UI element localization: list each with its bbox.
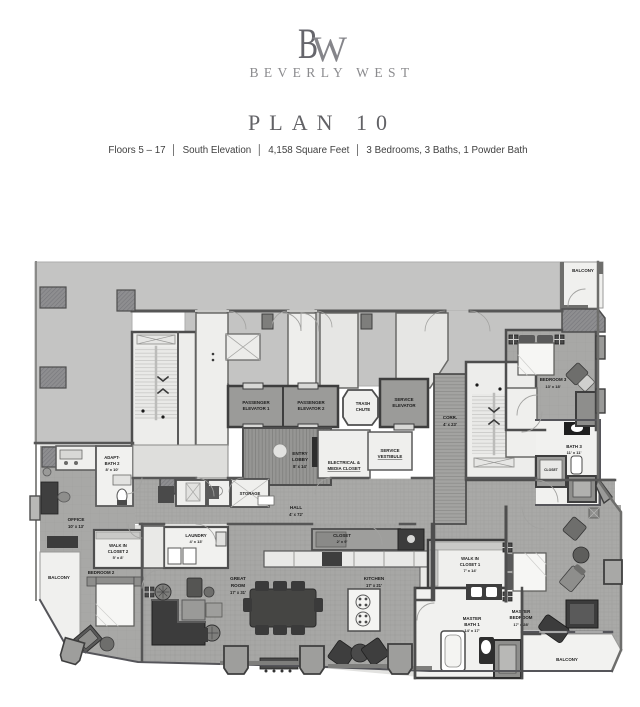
svg-text:BALCONY: BALCONY <box>572 268 594 273</box>
svg-text:CLOSET: CLOSET <box>544 468 559 472</box>
svg-text:BALCONY: BALCONY <box>48 575 70 580</box>
svg-text:5' x 8': 5' x 8' <box>113 555 124 560</box>
svg-text:BEDROOM 3: BEDROOM 3 <box>540 377 567 382</box>
svg-text:LOBBY: LOBBY <box>292 457 308 462</box>
svg-text:VESTIBULE: VESTIBULE <box>378 454 403 459</box>
svg-text:ELEVATOR: ELEVATOR <box>392 403 416 408</box>
svg-text:LAUNDRY: LAUNDRY <box>185 533 206 538</box>
svg-text:BATH 3: BATH 3 <box>566 444 582 449</box>
svg-text:7' x 14': 7' x 14' <box>463 568 476 573</box>
svg-text:PLAN 10: PLAN 10 <box>248 110 396 135</box>
svg-text:WALK IN: WALK IN <box>461 556 479 561</box>
svg-text:MASTER: MASTER <box>463 616 482 621</box>
svg-text:BATH 1: BATH 1 <box>464 622 480 627</box>
svg-text:11' x 11': 11' x 11' <box>567 450 582 455</box>
svg-text:PASSENGER: PASSENGER <box>242 400 270 405</box>
svg-text:BEVERLY WEST: BEVERLY WEST <box>249 65 414 80</box>
svg-text:OFFICE: OFFICE <box>68 517 85 522</box>
svg-text:ELEVATOR 2: ELEVATOR 2 <box>298 406 325 411</box>
svg-text:TRASH: TRASH <box>356 401 370 406</box>
svg-text:HALL: HALL <box>290 505 302 510</box>
svg-text:WALK IN: WALK IN <box>109 543 127 548</box>
svg-text:14' x 17': 14' x 17' <box>464 628 479 633</box>
svg-text:KITCHEN: KITCHEN <box>364 576 385 581</box>
svg-text:STORAGE: STORAGE <box>240 491 261 496</box>
svg-text:17' x 21': 17' x 21' <box>366 583 382 588</box>
svg-text:CORR.: CORR. <box>443 415 457 420</box>
svg-text:CHUTE: CHUTE <box>356 407 371 412</box>
svg-text:4' x 23': 4' x 23' <box>443 422 457 427</box>
svg-text:4' x 13': 4' x 13' <box>189 539 202 544</box>
svg-text:PASSENGER: PASSENGER <box>297 400 325 405</box>
svg-text:W: W <box>312 29 347 69</box>
svg-text:BATH 2: BATH 2 <box>105 461 120 466</box>
svg-text:BALCONY: BALCONY <box>556 657 578 662</box>
svg-text:13' x 18': 13' x 18' <box>545 384 560 389</box>
svg-text:ENTRY: ENTRY <box>292 451 307 456</box>
svg-text:SERVICE: SERVICE <box>380 448 399 453</box>
svg-text:GREAT: GREAT <box>230 576 246 581</box>
svg-text:Floors 5 – 17 │ South Elevat: Floors 5 – 17 │ South Elevation │ 4,158 … <box>108 144 527 156</box>
svg-text:ADAPT-: ADAPT- <box>104 455 120 460</box>
svg-text:ELECTRICAL &: ELECTRICAL & <box>328 460 361 465</box>
svg-text:CLOSET: CLOSET <box>333 533 351 538</box>
svg-text:8' x 10': 8' x 10' <box>105 467 118 472</box>
svg-text:SERVICE: SERVICE <box>394 397 413 402</box>
svg-text:17' x 31': 17' x 31' <box>230 590 246 595</box>
svg-text:10' x 13': 10' x 13' <box>68 524 84 529</box>
svg-text:MEDIA CLOSET: MEDIA CLOSET <box>327 466 360 471</box>
svg-text:CLOSET 2: CLOSET 2 <box>108 549 129 554</box>
svg-text:8' x 14': 8' x 14' <box>293 464 307 469</box>
svg-text:CLOSET 1: CLOSET 1 <box>460 562 481 567</box>
svg-text:BEDROOM 2: BEDROOM 2 <box>88 570 115 575</box>
svg-text:4' x 72': 4' x 72' <box>289 512 303 517</box>
svg-text:ROOM: ROOM <box>231 583 245 588</box>
svg-text:2' x 9': 2' x 9' <box>337 539 348 544</box>
svg-text:ELEVATOR 1: ELEVATOR 1 <box>243 406 270 411</box>
